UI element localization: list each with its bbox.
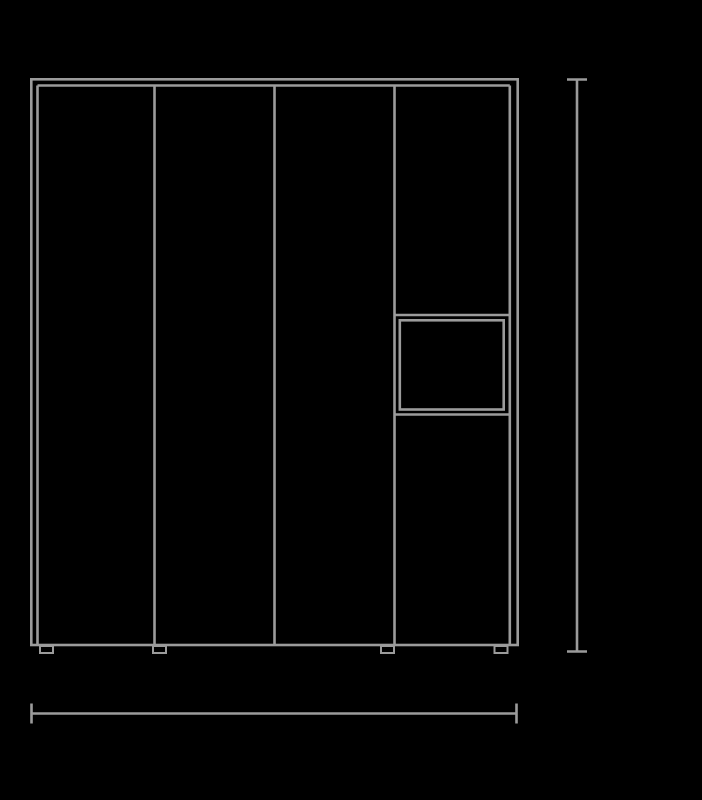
wardrobe-elevation-drawing bbox=[0, 0, 702, 800]
cabinet-foot-2 bbox=[153, 646, 166, 653]
cabinet-foot-3 bbox=[381, 646, 394, 653]
cabinet-foot-1 bbox=[40, 646, 53, 653]
open-shelf-niche bbox=[400, 320, 504, 409]
elevation-svg-canvas bbox=[0, 0, 702, 800]
cabinet-foot-4 bbox=[495, 646, 508, 653]
